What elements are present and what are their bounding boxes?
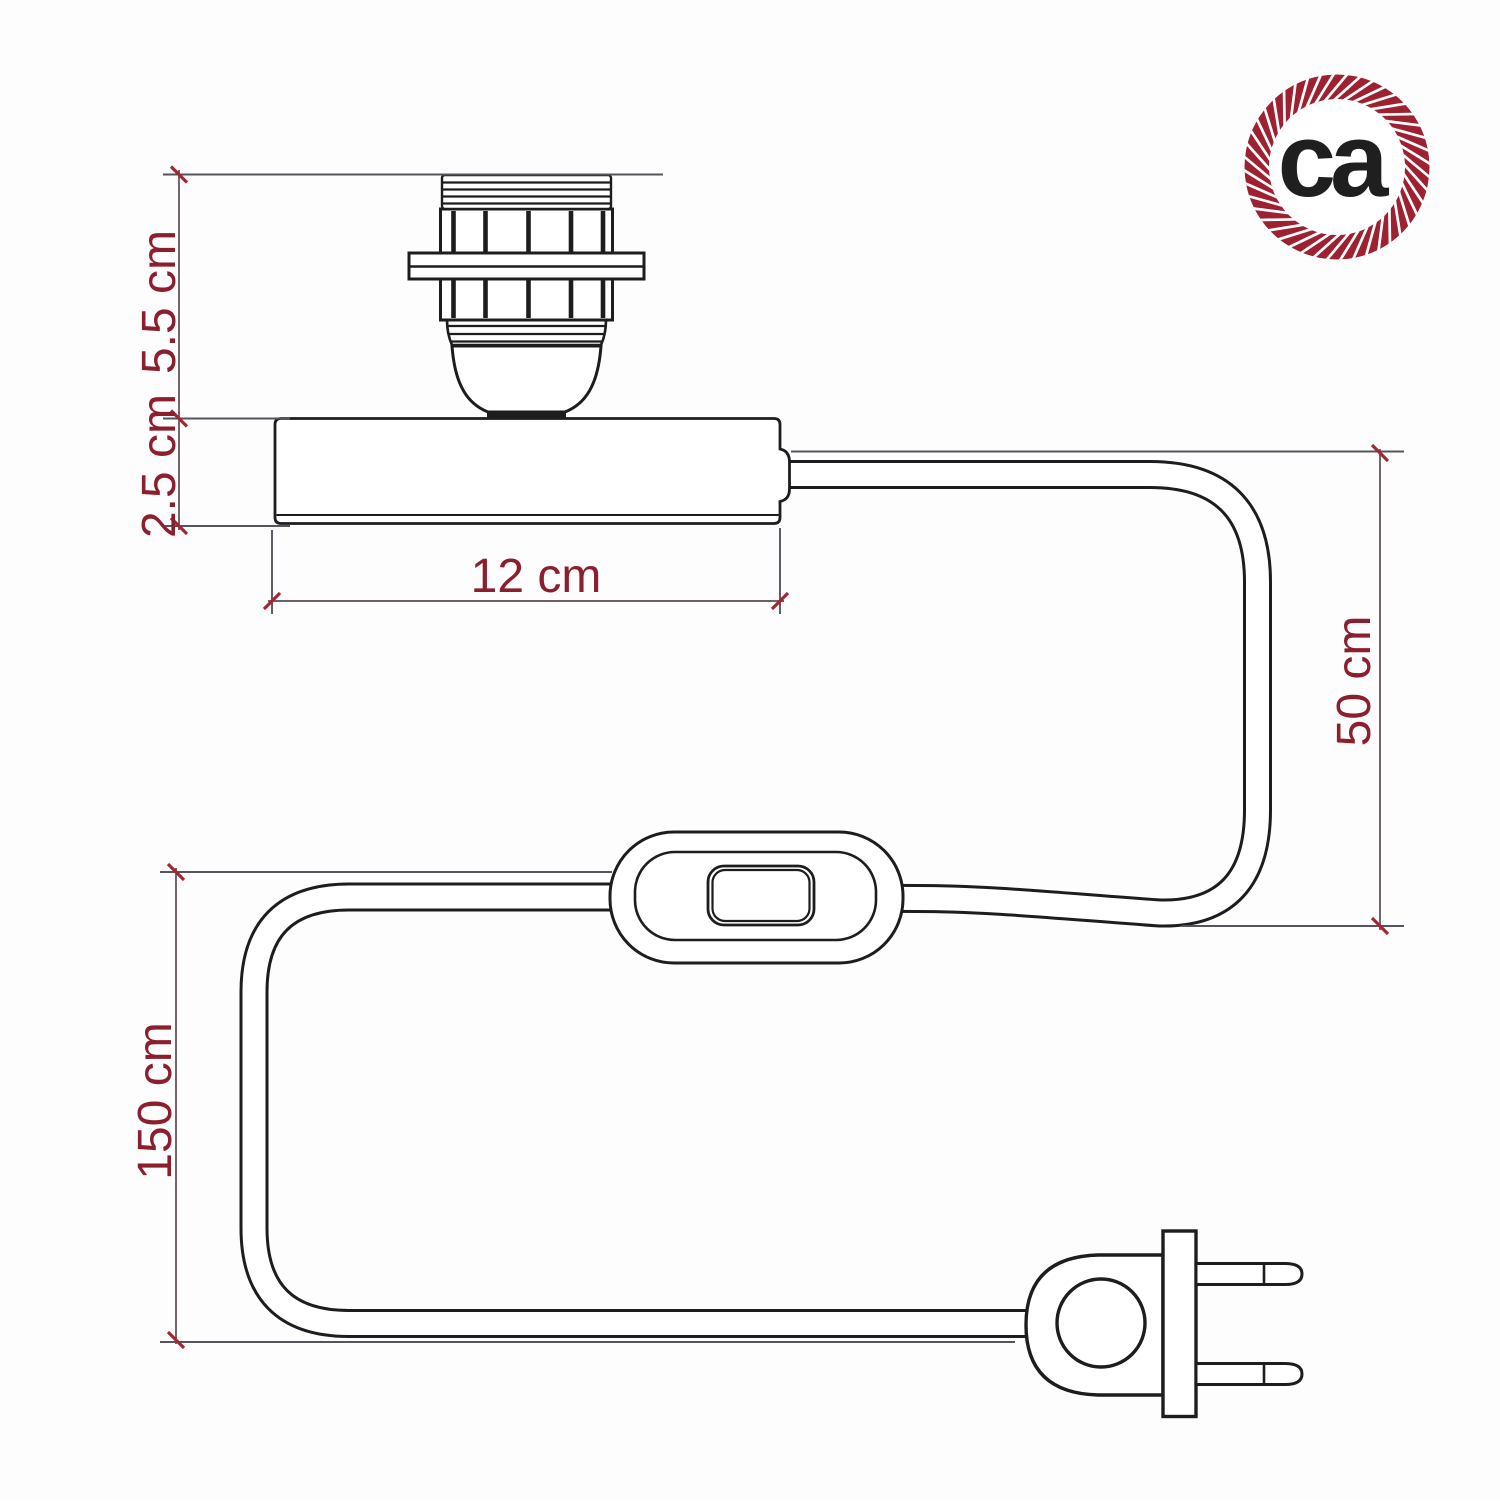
svg-text:5.5 cm: 5.5 cm	[133, 230, 186, 374]
svg-text:12 cm: 12 cm	[471, 550, 602, 603]
svg-text:150 cm: 150 cm	[129, 1022, 182, 1179]
svg-text:2.5 cm: 2.5 cm	[133, 394, 186, 538]
svg-text:ca: ca	[1278, 102, 1390, 219]
svg-text:50 cm: 50 cm	[1328, 616, 1381, 747]
